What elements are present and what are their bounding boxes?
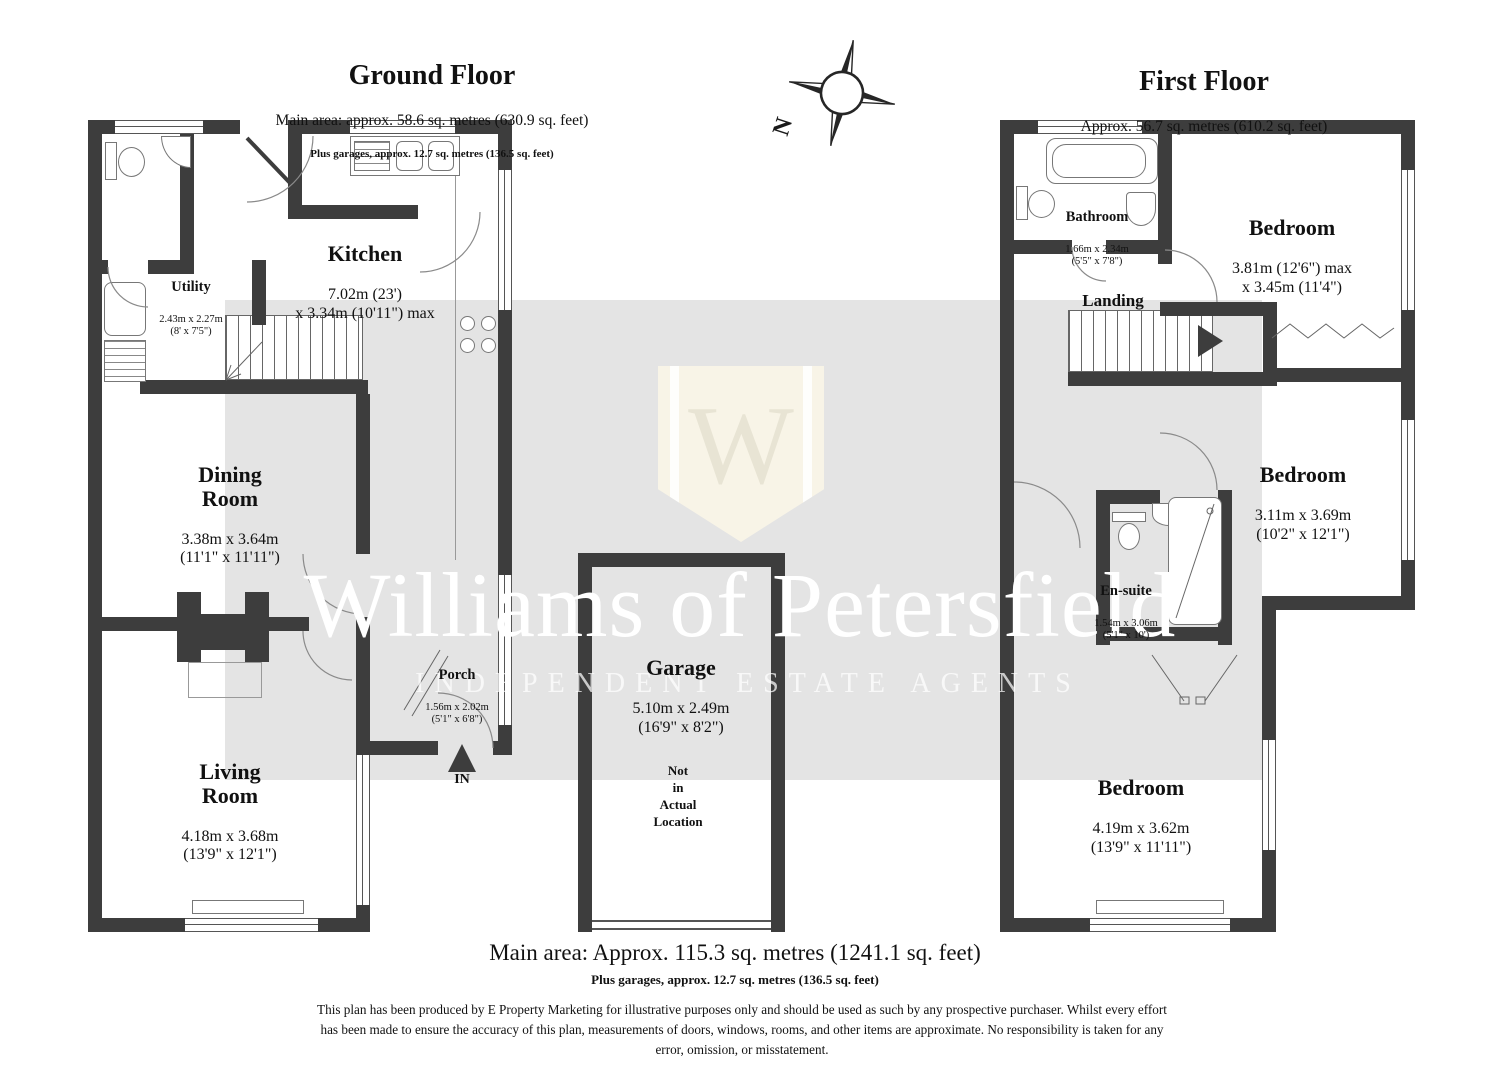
room-label-garage: Garage 5.10m x 2.49m (16'9" x 8'2") [633,638,730,756]
wall-segment [288,205,418,219]
room-name: Bedroom [1091,776,1191,800]
floor-area-text: Main area: approx. 58.6 sq. metres (630.… [276,112,589,130]
hob-ring-fixture [460,338,475,353]
wall-segment [1096,490,1160,504]
toilet-bowl-fixture [1118,523,1140,550]
room-label-bedroom-2: Bedroom 3.11m x 3.69m (10'2" x 12'1") [1255,445,1351,563]
window [115,120,203,134]
room-dims: 3.11m x 3.69m (10'2" x 12'1") [1255,507,1351,545]
wall-segment [578,918,592,932]
utility-drainer-fixture [104,340,146,382]
room-label-bedroom-1: Bedroom 3.81m (12'6") max x 3.45m (11'4"… [1232,198,1352,316]
floor-title: Ground Floor [276,60,589,92]
room-dims: 4.18m x 3.68m (13'9" x 12'1") [182,828,279,866]
wall-segment [102,617,177,631]
toilet-cistern-fixture [105,142,117,180]
wall-segment [252,260,266,325]
total-garage-area-text: Plus garages, approx. 12.7 sq. metres (1… [591,972,879,988]
room-name: Bathroom [1065,210,1129,226]
toilet-bowl-fixture [1028,190,1055,218]
window [1401,170,1415,310]
ground-floor-title-block: Ground Floor Main area: approx. 58.6 sq.… [276,42,589,178]
hob-ring-fixture [460,316,475,331]
wall-segment [88,260,108,274]
toilet-cistern-fixture [1112,512,1146,522]
room-name: Porch [425,668,489,684]
room-label-dining: Dining Room 3.38m x 3.64m (11'1" x 11'11… [180,445,280,586]
wall-segment [1000,120,1014,932]
room-name: Garage [633,656,730,680]
watermark-tagline: INDEPENDENT ESTATE AGENTS [415,668,1081,700]
room-dims: 1.56m x 2.02m (5'1" x 6'8") [425,702,489,727]
wall-segment [1068,372,1277,386]
wall-segment [1014,240,1072,254]
room-name: Utility [159,280,223,296]
room-name: Bedroom [1232,216,1352,240]
corner-basin-fixture [161,136,191,168]
floorplan-page: W [0,0,1485,1080]
fireplace-hearth [188,662,262,698]
wall-segment [493,741,512,755]
toilet-bowl-fixture [118,147,145,177]
room-dims: 3.38m x 3.64m (11'1" x 11'11") [180,531,280,569]
first-floor-title-block: First Floor Approx. 56.7 sq. metres (610… [1081,48,1328,154]
room-name: Landing [1082,292,1143,310]
window [1262,740,1276,850]
wall-segment [771,918,785,932]
room-dims: 2.43m x 2.27m (8' x 7'5") [159,314,223,339]
wall-segment [1263,368,1401,382]
room-label-living: Living Room 4.18m x 3.68m (13'9" x 12'1"… [182,742,279,883]
brand-monogram: W [658,366,824,526]
room-name: Bedroom [1255,463,1351,487]
window [185,918,318,932]
window [498,170,512,310]
room-label-utility: Utility 2.43m x 2.27m (8' x 7'5") [159,262,223,357]
radiator-fixture [192,900,304,914]
compass-north-label: N [768,114,798,139]
wall-segment [177,614,269,650]
room-dims: 7.02m (23') x 3.34m (10'11") max [295,286,434,324]
window [356,755,370,905]
floor-title: First Floor [1081,66,1328,98]
floor-garage-area-text: Plus garages, approx. 12.7 sq. metres (1… [276,148,589,160]
window [1401,420,1415,560]
room-dims: 1.54m x 3.06m (5'1" x 10') [1094,618,1158,643]
utility-sink-fixture [104,282,146,336]
room-label-ensuite: En-suite 1.54m x 3.06m (5'1" x 10') [1094,566,1158,661]
disclaimer-text: This plan has been produced by E Propert… [237,1000,1247,1059]
room-label-porch: Porch 1.56m x 2.02m (5'1" x 6'8") [425,650,489,745]
wall-segment [140,380,368,394]
window [1090,918,1230,932]
basin-fixture [1126,192,1156,226]
garage-location-note: Not in Actual Location [653,763,702,831]
room-dims: 3.81m (12'6") max x 3.45m (11'4") [1232,260,1352,298]
room-name: En-suite [1094,584,1158,600]
room-name: Living Room [182,760,279,808]
room-dims: 4.19m x 3.62m (13'9" x 11'11") [1091,820,1191,858]
garage-door [592,920,771,930]
wall-segment [1262,596,1415,610]
room-label-landing: Landing [1082,274,1143,328]
room-name: Kitchen [295,242,434,266]
room-dims: 5.10m x 2.49m (16'9" x 8'2") [633,700,730,738]
room-name: Dining Room [180,463,280,511]
kitchen-counter-edge [455,176,456,560]
wall-segment [88,120,102,932]
room-dims: 1.66m x 2.34m (5'5" x 7'8") [1065,244,1129,269]
entrance-in-label: IN [454,772,470,788]
room-label-kitchen: Kitchen 7.02m (23') x 3.34m (10'11") max [295,224,434,342]
hob-ring-fixture [481,316,496,331]
floor-area-text: Approx. 56.7 sq. metres (610.2 sq. feet) [1081,118,1328,136]
watermark-brand-text: Williams of Petersfield [304,552,1177,658]
radiator-fixture [1096,900,1224,914]
room-label-bathroom: Bathroom 1.66m x 2.34m (5'5" x 7'8") [1065,192,1129,287]
compass-icon: N [768,33,913,153]
hob-ring-fixture [481,338,496,353]
toilet-cistern-fixture [1016,186,1028,220]
room-label-bedroom-3: Bedroom 4.19m x 3.62m (13'9" x 11'11") [1091,758,1191,876]
wall-segment [356,394,370,554]
total-area-text: Main area: Approx. 115.3 sq. metres (124… [489,940,981,966]
first-floor-plan [1000,120,1415,932]
